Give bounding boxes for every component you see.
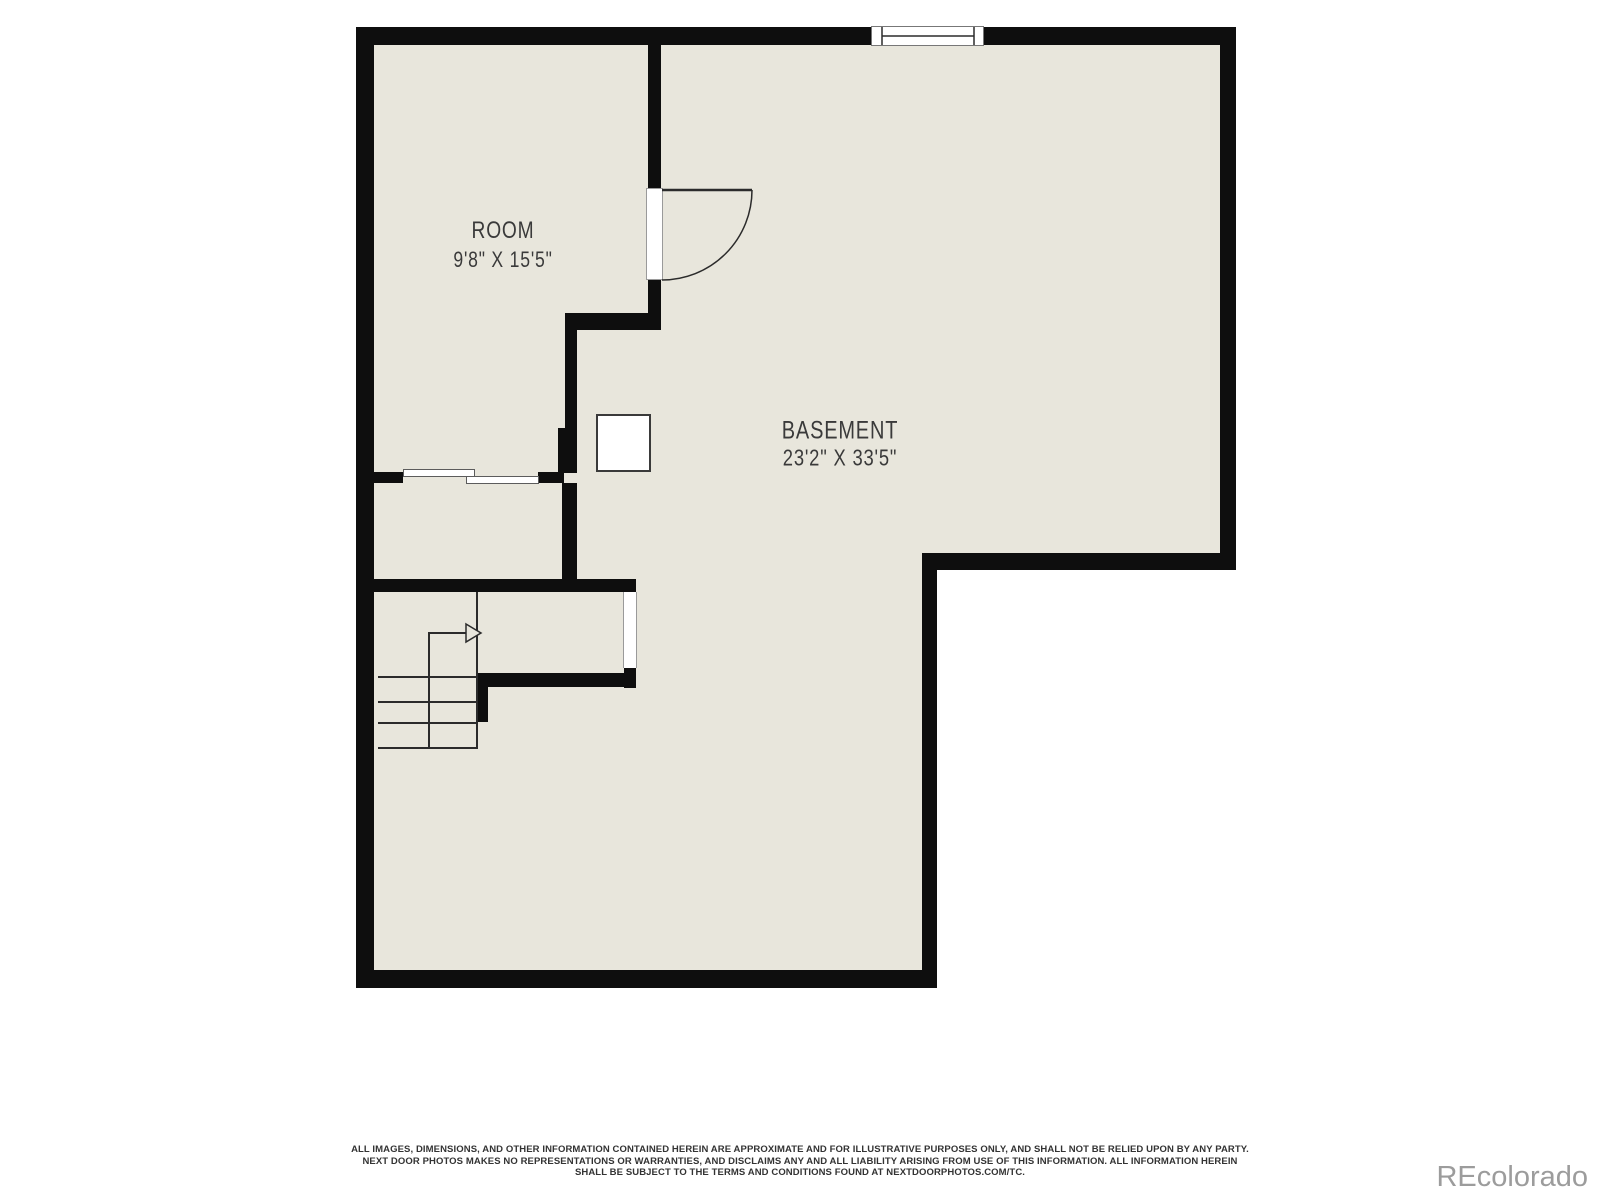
wall-step-vertical (565, 330, 577, 428)
stairs-arrow-shaft (429, 632, 467, 634)
window-icon-top (871, 26, 984, 46)
watermark-recolorado: REcolorado (1436, 1161, 1588, 1194)
stairs-right-edge-line (476, 592, 478, 749)
wall-window-right-segment (538, 472, 564, 483)
disclaimer-line-3: SHALL BE SUBJECT TO THE TERMS AND CONDIT… (0, 1167, 1600, 1179)
stairs-center-line (428, 632, 430, 749)
floor-area-lower (374, 554, 922, 970)
basement-dimensions: 23'2" X 33'5" (783, 445, 897, 472)
window-icon-left-pane-lower (466, 476, 539, 484)
floor-plan-page: ROOM 9'8" X 15'5" BASEMENT 23'2" X 33'5"… (0, 0, 1600, 1200)
door-opening (646, 188, 663, 280)
disclaimer-text: ALL IMAGES, DIMENSIONS, AND OTHER INFORM… (0, 1144, 1600, 1179)
wall-room-divider-upper (648, 43, 661, 190)
stair-opening (623, 592, 637, 668)
wall-right-bottom (922, 553, 1236, 570)
wall-mid-vertical (922, 553, 937, 988)
basement-label: BASEMENT (782, 417, 898, 446)
wall-step-horizontal (565, 313, 661, 330)
utility-box (596, 414, 651, 472)
wall-window-left-segment (374, 472, 403, 483)
disclaimer-line-1: ALL IMAGES, DIMENSIONS, AND OTHER INFORM… (0, 1144, 1600, 1156)
wall-stairs-bottom-vertical (478, 687, 488, 722)
wall-step-vertical-wide (558, 428, 577, 473)
wall-stairwell-top (374, 579, 636, 592)
wall-right (1220, 27, 1236, 570)
wall-bottom (356, 970, 937, 988)
wall-lower-room-right (562, 483, 577, 579)
disclaimer-line-2: NEXT DOOR PHOTOS MAKES NO REPRESENTATION… (0, 1156, 1600, 1168)
wall-top (356, 27, 1236, 45)
wall-left (356, 27, 374, 988)
room-label: ROOM (472, 217, 535, 245)
window-icon-left-pane-upper (403, 469, 475, 477)
wall-stairs-bottom-horizontal (478, 673, 636, 687)
room-dimensions: 9'8" X 15'5" (453, 247, 552, 273)
